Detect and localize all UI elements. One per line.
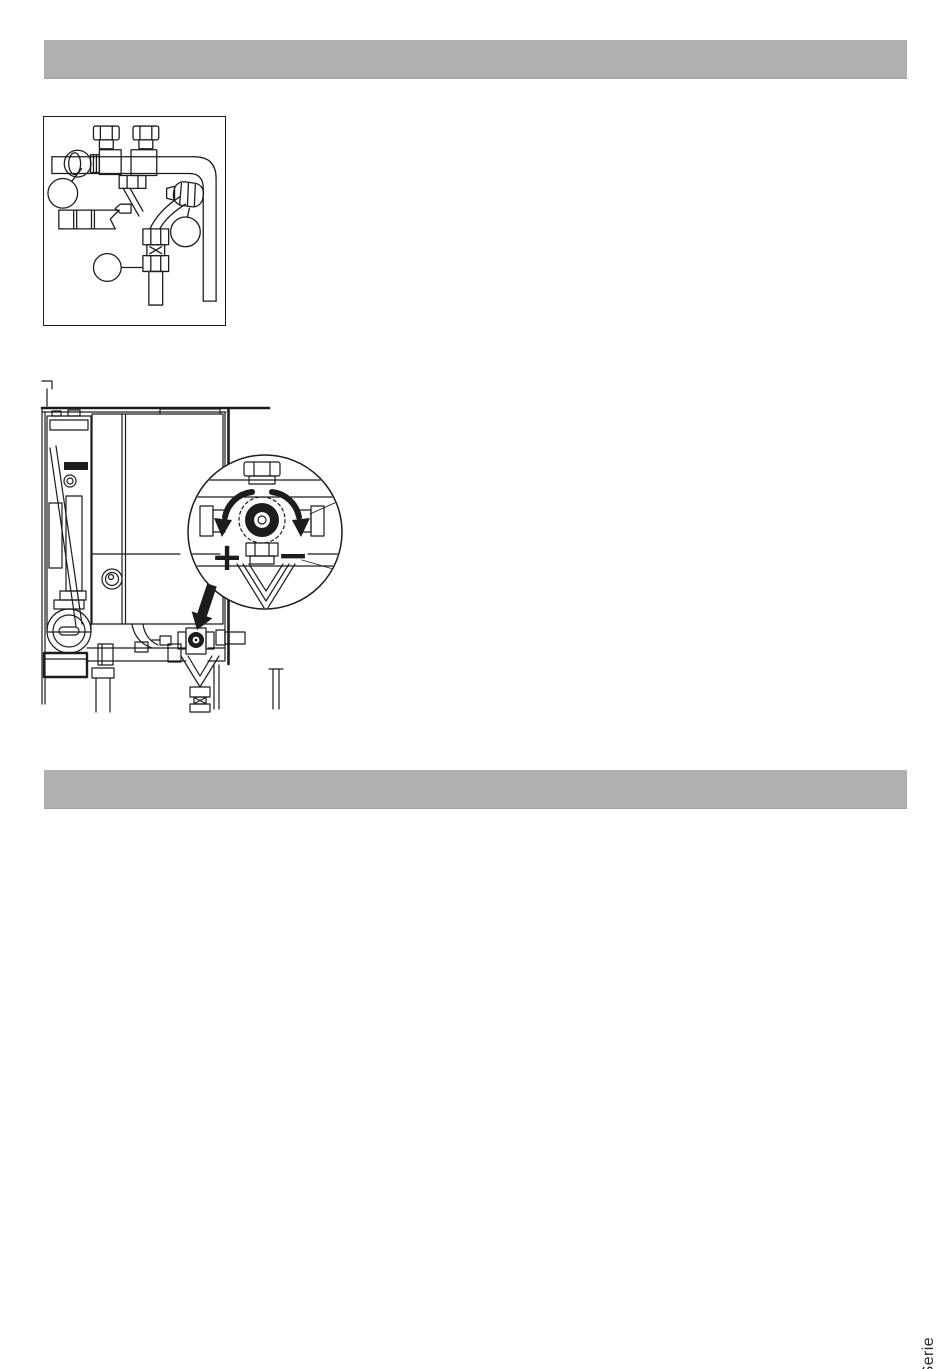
bottom-piping [87, 624, 283, 709]
section-header-bar-bottom [44, 770, 907, 809]
circulation-pump [47, 600, 91, 653]
bottom-left-pipe [92, 668, 114, 712]
compression-fitting-stack [143, 229, 169, 305]
bend-pipe [189, 157, 216, 301]
section-header-bar-top [44, 40, 907, 79]
callout-circle-1 [48, 169, 82, 209]
union-cap-left [93, 126, 119, 149]
callout-circle-3 [93, 254, 142, 282]
boiler-drawing: + − [40, 368, 350, 713]
plus-label: + [211, 535, 243, 579]
document-page: + − Installatievoorschrift ATAG QR-Serie [0, 0, 950, 1369]
bypass-valve [178, 628, 214, 654]
vertical-page-title: Installatievoorschrift ATAG QR-Serie [920, 1337, 938, 1369]
segmented-pipe [59, 210, 119, 229]
union-cap-right [133, 126, 159, 149]
minus-label: − [277, 533, 309, 577]
figure-valve-assembly [43, 116, 226, 326]
section-header-top-label [44, 40, 907, 78]
internal-machinery [47, 410, 91, 632]
valve-body-left [99, 150, 121, 175]
siphon-funnel [181, 656, 219, 712]
wall-bracket [42, 381, 52, 406]
valve-body-right [131, 150, 157, 176]
valve-assembly-drawing [44, 117, 225, 325]
gas-valve-block [44, 653, 87, 677]
section-header-bottom-label [44, 770, 907, 808]
callout-circle-2 [171, 208, 201, 247]
figure-boiler-bypass: + − [40, 368, 350, 713]
